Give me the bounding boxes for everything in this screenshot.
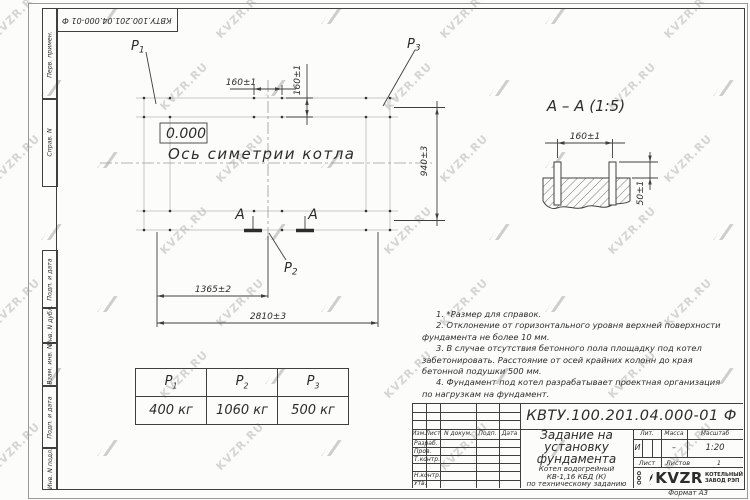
load-table-value-p3: 500 кг — [278, 397, 349, 425]
tb-row-razrab: Разраб. — [414, 440, 438, 448]
note-3: 3. В случае отсутствия бетонного пола пл… — [422, 343, 732, 377]
drawing-sheet: { "sheet": { "corner_stamp": "КВТУ.100.2… — [0, 0, 750, 500]
tb-col-data: Дата — [499, 430, 520, 437]
load-table-value-p1: 400 кг — [136, 397, 207, 425]
tb-row-utv: Утв. — [414, 480, 427, 488]
margin-cell-perv-primen: Перв. примен. — [42, 8, 58, 100]
tb-mass-label: Масса — [661, 430, 687, 437]
kvzr-logo-icon — [649, 471, 653, 485]
logo-name-text: KVZR — [655, 469, 703, 487]
tb-designation: КВТУ.100.201.04.000-01 Ф — [520, 403, 743, 429]
margin-cell-podp-data-2: Подп. и дата — [42, 385, 58, 449]
tb-sheet-label: Лист — [633, 459, 661, 467]
tb-scale-label: Масштаб — [687, 430, 743, 437]
logo-ooo-text: ООО — [637, 470, 643, 484]
note-1: 1. *Размер для справок. — [422, 309, 732, 320]
margin-cell-vzam-inv: Взам. инв. N — [42, 342, 58, 387]
logo-subtitle: КОТЕЛЬНЫЙ ЗАВОД РЭП — [705, 472, 743, 484]
tb-col-podp: Подп. — [476, 430, 499, 437]
corner-designation-stamp: КВТУ.100.201.04.000-01 Ф — [56, 8, 178, 32]
load-table-value-row: 400 кг 1060 кг 500 кг — [136, 397, 349, 425]
load-table-header-p2: P2 — [207, 369, 278, 397]
margin-cell-inv-dubl: Инв. N дубл. — [42, 307, 58, 344]
tb-scale-value: 1:20 — [687, 443, 743, 453]
load-table: P1 P2 P3 400 кг 1060 кг 500 кг — [135, 368, 349, 425]
tb-lit-value: И — [633, 443, 642, 452]
load-table-header-row: P1 P2 P3 — [136, 369, 349, 397]
load-table-header-p1: P1 — [136, 369, 207, 397]
tb-row-tkontr: Т.контр. — [414, 456, 440, 464]
tb-product-line-3: по техническому заданию — [527, 480, 627, 488]
margin-cell-sprav-n: Справ. N — [42, 98, 58, 187]
tb-logo: ООО KVZR КОТЕЛЬНЫЙ ЗАВОД РЭП — [633, 467, 743, 488]
tb-mass-value: – — [661, 443, 687, 452]
margin-cell-podp-data-1: Подп. и дата — [42, 250, 58, 309]
format-note: Формат А3 — [633, 489, 743, 497]
tb-col-ndokum: N докум. — [440, 430, 476, 437]
load-table-value-p2: 1060 кг — [207, 397, 278, 425]
load-table-header-p3: P3 — [278, 369, 349, 397]
tb-sheets-label: Листов — [661, 459, 695, 467]
margin-cell-inv-podl: Инв. N подл. — [42, 447, 58, 490]
note-4: 4. Фундамент под котел разрабатывает про… — [422, 377, 732, 400]
note-2: 2. Отклонение от горизонтального уровня … — [422, 320, 732, 343]
tb-row-nkontr: Н.контр. — [414, 472, 441, 480]
tb-sheets-value: 1 — [695, 459, 743, 467]
tb-lit-label: Лит. — [633, 430, 661, 437]
technical-notes: 1. *Размер для справок. 2. Отклонение от… — [422, 309, 732, 400]
tb-document-name: Задание на установку фундамента Котел во… — [520, 429, 633, 488]
tb-col-list: Лист — [425, 430, 441, 437]
tb-row-prov: Пров. — [414, 448, 431, 456]
corner-designation-text: КВТУ.100.201.04.000-01 Ф — [62, 16, 172, 25]
